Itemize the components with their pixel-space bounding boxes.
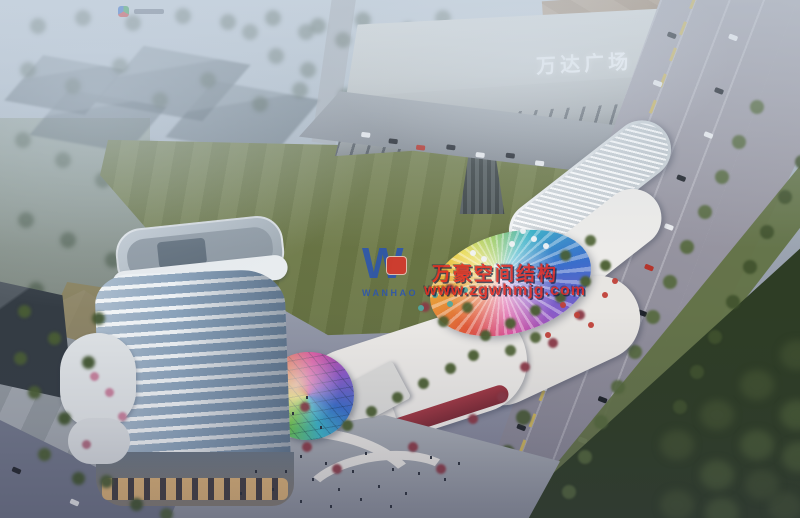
watermark: W WANHAO 万豪空间结构 www.zgwhmjg.com — [0, 0, 800, 518]
wanhao-logo: W WANHAO — [362, 250, 434, 312]
aerial-rendering: 万达广场 — [0, 0, 800, 518]
wanhao-logo-red-square — [386, 256, 407, 275]
watermark-website: www.zgwhmjg.com — [424, 282, 586, 300]
